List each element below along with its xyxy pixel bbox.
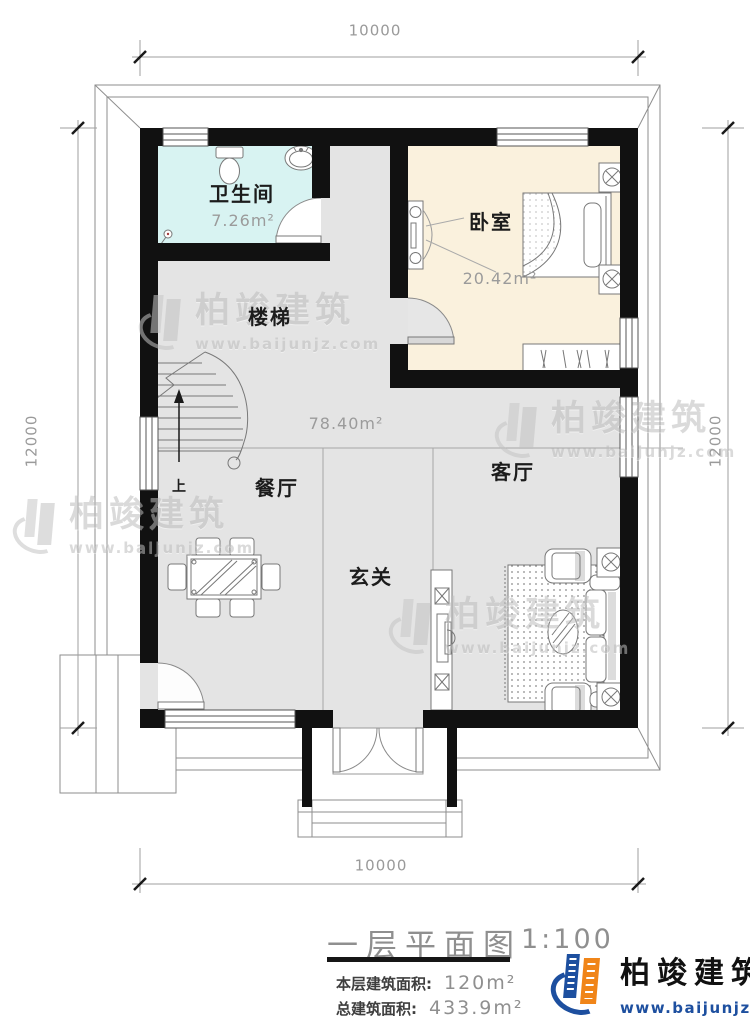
sink-basin xyxy=(290,151,313,167)
bedroom-wall xyxy=(390,370,638,388)
watermark-logo-icon xyxy=(496,399,542,453)
room-area-bedroom: 20.42m² xyxy=(463,271,538,287)
dim-bottom: 10000 xyxy=(355,859,408,874)
chair xyxy=(196,599,220,617)
bathroom-door-leaf xyxy=(276,236,321,243)
bedroom-window xyxy=(497,128,588,146)
dim-top: 10000 xyxy=(349,24,402,39)
chair xyxy=(230,599,254,617)
watermark-logo-icon xyxy=(140,291,186,345)
total-area-label: 总建筑面积: xyxy=(336,998,417,1019)
toilet-bowl xyxy=(220,158,240,184)
watermark: 柏竣建筑 www.baijunjz.com xyxy=(14,486,254,557)
brand-name: 柏竣建筑 xyxy=(620,948,750,992)
watermark-logo-icon xyxy=(390,595,436,649)
stairs-up-label: 上 xyxy=(172,480,186,494)
floor-area-value: 120m² xyxy=(444,972,516,994)
room-area-open: 78.40m² xyxy=(309,416,384,432)
chair xyxy=(262,564,280,590)
dim-left: 12000 xyxy=(25,415,40,468)
wardrobe xyxy=(523,344,620,374)
room-label-bathroom: 卫生间 xyxy=(209,184,275,204)
toilet-tank xyxy=(216,147,243,158)
brand-website: www.baijunjz.com xyxy=(620,999,750,1017)
porch-wall xyxy=(302,728,312,807)
title-underline xyxy=(327,957,510,962)
porch-wall xyxy=(447,728,457,807)
room-label-living: 客厅 xyxy=(491,462,535,482)
bathroom-wall xyxy=(312,146,330,198)
bedroom-door-leaf xyxy=(408,337,454,344)
pillow xyxy=(584,203,601,267)
entry-door-leaf xyxy=(416,728,423,772)
watermark: 柏竣建筑 www.baijunjz.com xyxy=(390,586,630,657)
room-label-foyer: 玄关 xyxy=(349,567,393,587)
stair-window xyxy=(140,417,158,490)
brand-logo: 柏竣建筑 www.baijunjz.com xyxy=(552,948,750,1017)
total-area-value: 433.9m² xyxy=(429,997,524,1019)
bathroom-window xyxy=(163,128,208,146)
dim-right: 12000 xyxy=(709,415,724,468)
brand-logo-icon xyxy=(552,948,612,1014)
room-label-stairs: 楼梯 xyxy=(248,307,292,327)
room-label-dining: 餐厅 xyxy=(255,478,299,498)
dining-window xyxy=(165,710,295,728)
bathroom-wall xyxy=(140,243,330,261)
floor-plan-page: 柏竣建筑 www.baijunjz.com 柏竣建筑 www.baijunjz.… xyxy=(0,0,750,1030)
watermark: 柏竣建筑 www.baijunjz.com xyxy=(496,390,736,461)
porch-steps xyxy=(298,800,462,837)
bedroom-side-window xyxy=(620,318,638,368)
entry-door-leaf xyxy=(333,728,340,772)
floor-area-label: 本层建筑面积: xyxy=(336,973,432,994)
bedroom-wall xyxy=(390,146,408,298)
watermark-logo-icon xyxy=(14,495,60,549)
room-area-bathroom: 7.26m² xyxy=(211,213,275,229)
entrance-porch xyxy=(298,728,462,837)
room-label-bedroom: 卧室 xyxy=(469,212,513,232)
side-door-leaf xyxy=(158,702,204,709)
chair xyxy=(168,564,186,590)
